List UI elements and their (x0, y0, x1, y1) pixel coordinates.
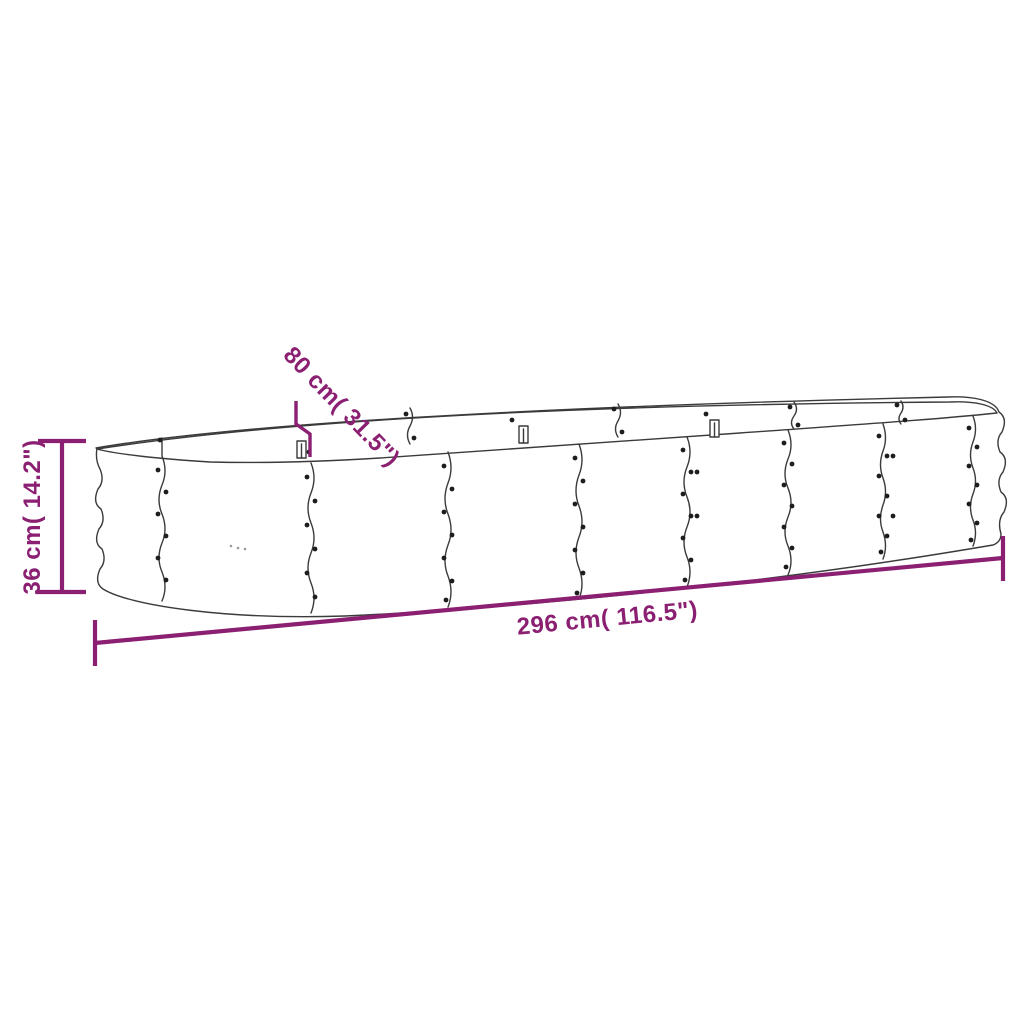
rim-bracket (710, 420, 719, 437)
diagram-svg: 36 cm( 14.2") 80 cm( 31.5") 296 cm( 116.… (0, 0, 1024, 1024)
rim-bracket (297, 441, 306, 458)
rim-bracket (519, 426, 528, 443)
height-dimension: 36 cm( 14.2") (19, 439, 86, 594)
planter-outline (96, 397, 1007, 617)
height-dimension-label: 36 cm( 14.2") (19, 439, 46, 594)
product-dimension-diagram: 36 cm( 14.2") 80 cm( 31.5") 296 cm( 116.… (0, 0, 1024, 1024)
planter-drawing (96, 397, 1007, 617)
